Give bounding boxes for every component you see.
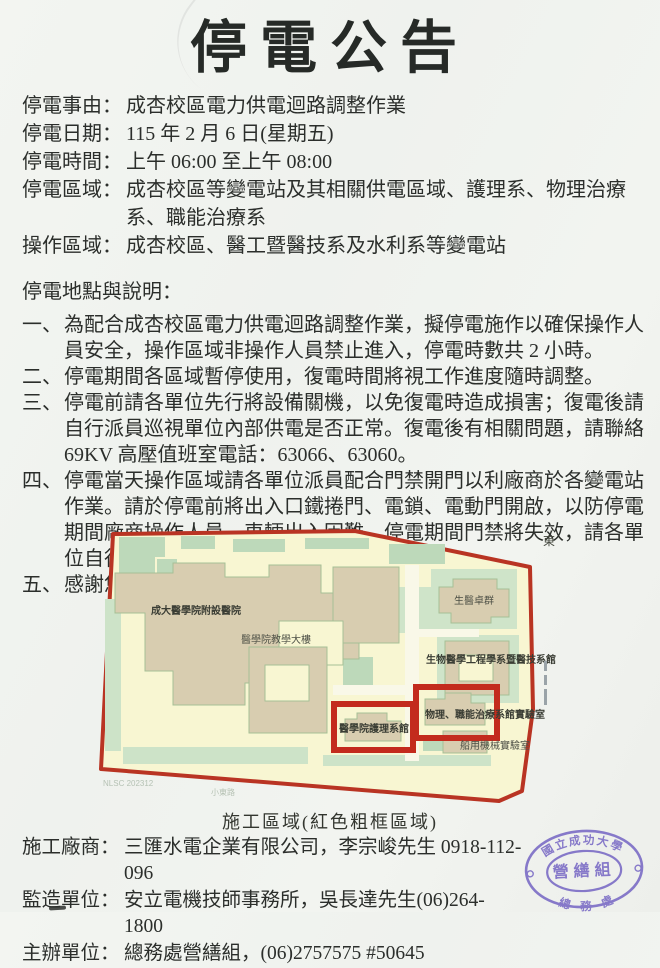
map-label-physio: 物理、職能治療系館實驗室 (425, 708, 545, 721)
section-heading: 停電地點與說明： (22, 278, 644, 306)
note-number: 一、 (22, 312, 64, 364)
map-label-marine: 船用機械實驗室 (460, 739, 530, 752)
note-number: 四、 (22, 468, 64, 572)
info-value: 115 年 2 月 6 日(星期五) (126, 120, 644, 148)
campus-map: 成大醫學院附設醫院 醫學院教學大樓 生醫卓群 生物醫學工程學系暨醫技系館 物理、… (93, 529, 565, 821)
info-label: 操作區域： (22, 232, 126, 260)
info-label: 停電時間： (22, 148, 126, 176)
footer-label: 監造單位： (22, 888, 124, 940)
info-row-reason: 停電事由： 成杏校區電力供電迴路調整作業 (22, 92, 644, 120)
note-number: 三、 (22, 390, 64, 468)
map-road-label: 小東路 (211, 787, 235, 797)
footer-label: 施工廠商： (22, 835, 124, 887)
svg-text:總 務 處: 總 務 處 (556, 892, 615, 915)
footer-row-supervisor: 監造單位： 安立電機技師事務所，吳長達先生(06)264-1800 (22, 888, 522, 940)
info-value: 上午 06:00 至上午 08:00 (126, 148, 644, 176)
info-row-operation-area: 操作區域： 成杏校區、醫工暨醫技系及水利系等變電站 (22, 232, 644, 260)
map-label-teaching: 醫學院教學大樓 (241, 633, 311, 646)
stamp-image: 國立成功大學 總 務 處 營繕組 (516, 821, 652, 916)
map-side-annotation-marks (544, 661, 547, 705)
official-seal-stamp: 國立成功大學 總 務 處 營繕組 (516, 821, 652, 916)
footer-row-organizer: 主辦單位： 總務處營繕組，(06)2757575 #50645 (22, 941, 522, 967)
info-label: 停電日期： (22, 120, 126, 148)
info-value: 成杏校區、醫工暨醫技系及水利系等變電站 (126, 232, 644, 260)
map-label-biomed-eng: 生物醫學工程學系暨醫技系館 (426, 653, 556, 666)
info-value: 成杏校區等變電站及其相關供電區域、護理系、物理治療系、職能治療系 (126, 176, 644, 232)
footer-label: 主辦單位： (22, 941, 124, 967)
footer-value: 安立電機技師事務所，吳長達先生(06)264-1800 (124, 888, 522, 940)
map-label-nursing: 醫學院護理系館 (339, 722, 409, 735)
map-watermark: NLSC 202312 (103, 779, 154, 788)
building-central-courtyard (265, 665, 309, 701)
stamp-text-center: 營繕組 (552, 859, 616, 881)
note-text: 停電前請各單位先行將設備關機，以免復電時造成損害；復電後請自行派員巡視單位內部供… (64, 390, 644, 468)
page-title: 停電公告 (0, 2, 660, 84)
power-outage-notice-document: { "title": "停電公告", "info": [ {"label": "… (0, 0, 660, 912)
note-text: 為配合成杏校區電力供電迴路調整作業，擬停電施作以確保操作人員安全，操作區域非操作… (64, 312, 644, 364)
note-text: 停電期間各區域暫停使用，復電時間將視工作進度隨時調整。 (64, 364, 644, 390)
notice-body: 停電事由： 成杏校區電力供電迴路調整作業 停電日期： 115 年 2 月 6 日… (22, 92, 644, 598)
info-row-time: 停電時間： 上午 06:00 至上午 08:00 (22, 148, 644, 176)
map-label-biomed-cluster: 生醫卓群 (454, 594, 494, 607)
campus-map-image: 成大醫學院附設醫院 醫學院教學大樓 生醫卓群 生物醫學工程學系暨醫技系館 物理、… (93, 529, 565, 821)
footer-row-contractor: 施工廠商： 三匯水電企業有限公司，李宗峻先生 0918-112-096 (22, 835, 522, 887)
info-row-outage-area: 停電區域： 成杏校區等變電站及其相關供電區域、護理系、物理治療系、職能治療系 (22, 176, 644, 232)
note-item-1: 一、 為配合成杏校區電力供電迴路調整作業，擬停電施作以確保操作人員安全，操作區域… (22, 312, 644, 364)
footer-contacts: 施工廠商： 三匯水電企業有限公司，李宗峻先生 0918-112-096 監造單位… (22, 835, 522, 968)
note-item-3: 三、 停電前請各單位先行將設備關機，以免復電時造成損害；復電後請自行派員巡視單位… (22, 390, 644, 468)
note-item-2: 二、 停電期間各區域暫停使用，復電時間將視工作進度隨時調整。 (22, 364, 644, 390)
map-label-hospital: 成大醫學院附設醫院 (151, 604, 241, 617)
info-value: 成杏校區電力供電迴路調整作業 (126, 92, 644, 120)
info-row-date: 停電日期： 115 年 2 月 6 日(星期五) (22, 120, 644, 148)
map-compass-east: 東 (543, 534, 555, 548)
footer-value: 總務處營繕組，(06)2757575 #50645 (124, 941, 522, 967)
stamp-text-office: 總 務 處 (556, 892, 615, 915)
info-label: 停電事由： (22, 92, 126, 120)
footer-value: 三匯水電企業有限公司，李宗峻先生 0918-112-096 (124, 835, 522, 887)
note-number: 五、 (22, 572, 64, 598)
info-label: 停電區域： (22, 176, 126, 232)
note-number: 二、 (22, 364, 64, 390)
